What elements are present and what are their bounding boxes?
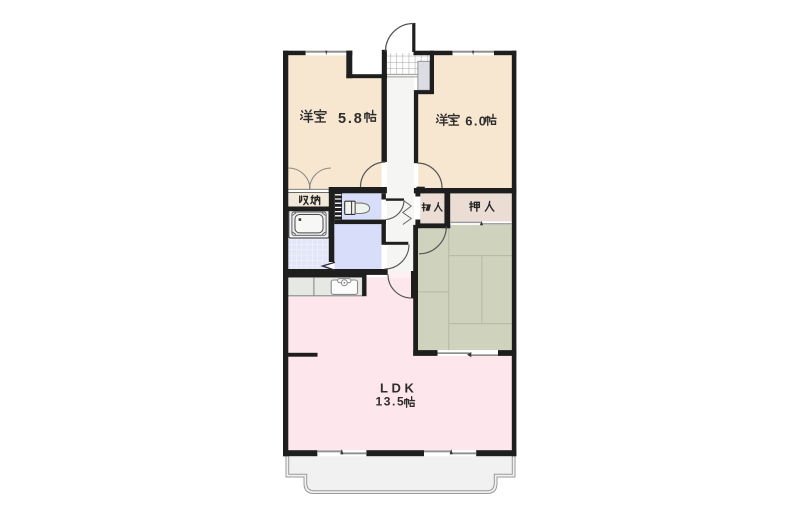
svg-text:13.5: 13.5 — [376, 395, 406, 409]
svg-text:LDK: LDK — [380, 381, 418, 396]
svg-text:6.0: 6.0 — [465, 114, 487, 129]
svg-text:5.8: 5.8 — [338, 111, 364, 127]
